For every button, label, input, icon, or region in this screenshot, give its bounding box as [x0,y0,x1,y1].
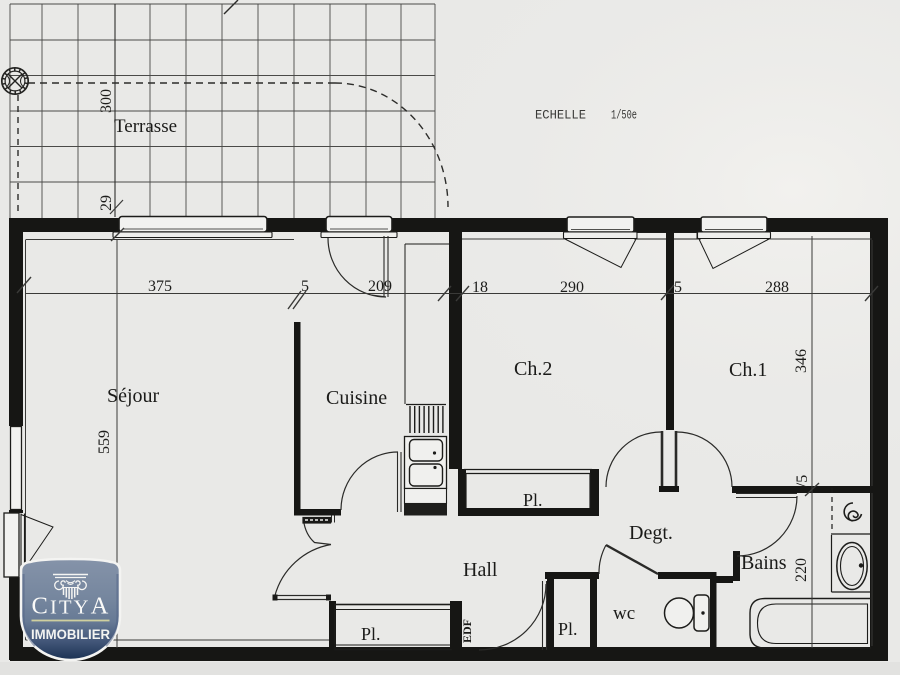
svg-text:EDF: EDF [460,619,474,643]
svg-text:Pl.: Pl. [523,490,543,510]
svg-text:Pl.: Pl. [361,624,381,644]
svg-text:Pl.: Pl. [558,619,578,639]
svg-text:/5: /5 [794,475,811,487]
svg-text:559: 559 [96,430,113,454]
svg-text:300: 300 [98,89,115,113]
svg-text:Séjour: Séjour [107,385,160,407]
svg-text:209: 209 [368,278,392,295]
svg-text:18: 18 [472,279,488,296]
svg-text:288: 288 [765,279,789,296]
svg-text:IMMOBILIER: IMMOBILIER [31,627,110,642]
svg-text:5: 5 [301,278,309,295]
svg-text:CITYA: CITYA [32,593,110,620]
svg-text:5: 5 [674,279,682,296]
svg-text:1/50e: 1/50e [611,109,637,123]
svg-text:Cuisine: Cuisine [326,387,387,409]
svg-text:Ch.2: Ch.2 [514,358,552,380]
svg-text:Ch.1: Ch.1 [729,359,767,381]
svg-text:Hall: Hall [463,559,498,581]
svg-text:wc: wc [613,603,635,624]
svg-text:Terrasse: Terrasse [114,116,177,137]
svg-text:Bains: Bains [741,552,787,574]
svg-text:ECHELLE: ECHELLE [535,109,586,123]
svg-text:346: 346 [793,349,810,373]
svg-text:Degt.: Degt. [629,522,673,544]
svg-text:29: 29 [98,195,115,211]
svg-text:375: 375 [148,278,172,295]
svg-text:290: 290 [560,279,584,296]
svg-text:220: 220 [793,558,810,582]
